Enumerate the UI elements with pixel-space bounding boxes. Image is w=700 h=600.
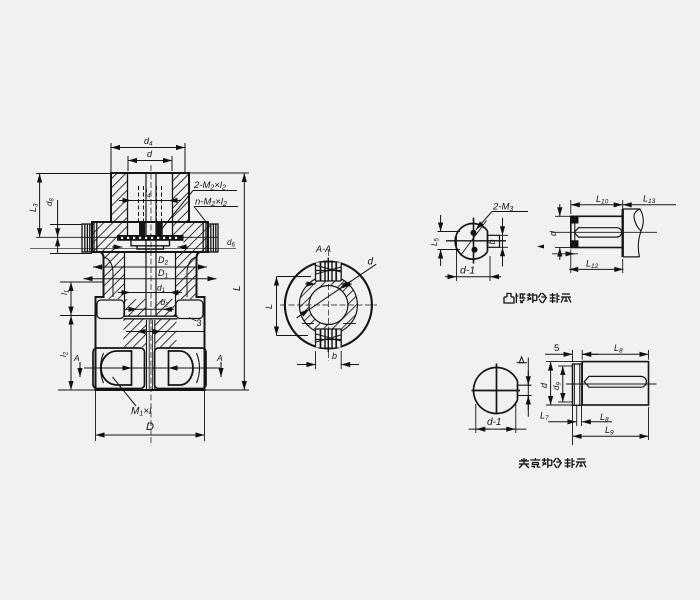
svg-text:L8: L8 xyxy=(600,412,609,424)
svg-text:L: L xyxy=(232,285,243,291)
svg-text:d1: d1 xyxy=(157,283,165,295)
svg-text:d8: d8 xyxy=(45,198,56,206)
svg-text:d-1: d-1 xyxy=(487,417,501,428)
svg-text:L9: L9 xyxy=(605,425,614,437)
svg-text:d-1: d-1 xyxy=(460,265,475,277)
svg-text:d: d xyxy=(548,230,558,236)
svg-text:L3: L3 xyxy=(28,203,40,212)
svg-text:d9: d9 xyxy=(552,382,563,390)
svg-text:L13: L13 xyxy=(643,194,656,206)
svg-text:d: d xyxy=(539,382,549,388)
svg-text:d6: d6 xyxy=(227,238,235,249)
svg-text:L5: L5 xyxy=(430,238,441,246)
svg-text:L7: L7 xyxy=(540,411,549,423)
svg-text:L10: L10 xyxy=(596,194,609,206)
svg-text:A-A: A-A xyxy=(315,244,331,254)
svg-text:d: d xyxy=(147,149,153,159)
svg-text:l1: l1 xyxy=(59,290,71,295)
svg-text:M1×l: M1×l xyxy=(131,406,152,418)
svg-text:2-M2×l2: 2-M2×l2 xyxy=(193,180,226,192)
svg-text:d: d xyxy=(368,257,374,268)
svg-text:d2: d2 xyxy=(161,297,170,309)
svg-text:b: b xyxy=(487,239,497,244)
svg-text:A: A xyxy=(216,353,223,363)
svg-text:l4: l4 xyxy=(145,188,151,200)
svg-text:A: A xyxy=(73,353,80,363)
svg-text:5: 5 xyxy=(554,343,559,354)
svg-text:D1: D1 xyxy=(158,268,169,280)
svg-text:L: L xyxy=(264,304,274,309)
svg-text:n-M2×l2: n-M2×l2 xyxy=(195,197,227,209)
svg-text:L8: L8 xyxy=(614,343,623,355)
svg-text:b: b xyxy=(332,351,337,361)
svg-text:D: D xyxy=(146,421,154,433)
svg-text:L12: L12 xyxy=(586,259,599,271)
svg-text:l2: l2 xyxy=(58,351,70,357)
svg-text:D2: D2 xyxy=(158,255,169,267)
svg-text:3: 3 xyxy=(197,318,202,328)
svg-text:d4: d4 xyxy=(144,136,153,148)
